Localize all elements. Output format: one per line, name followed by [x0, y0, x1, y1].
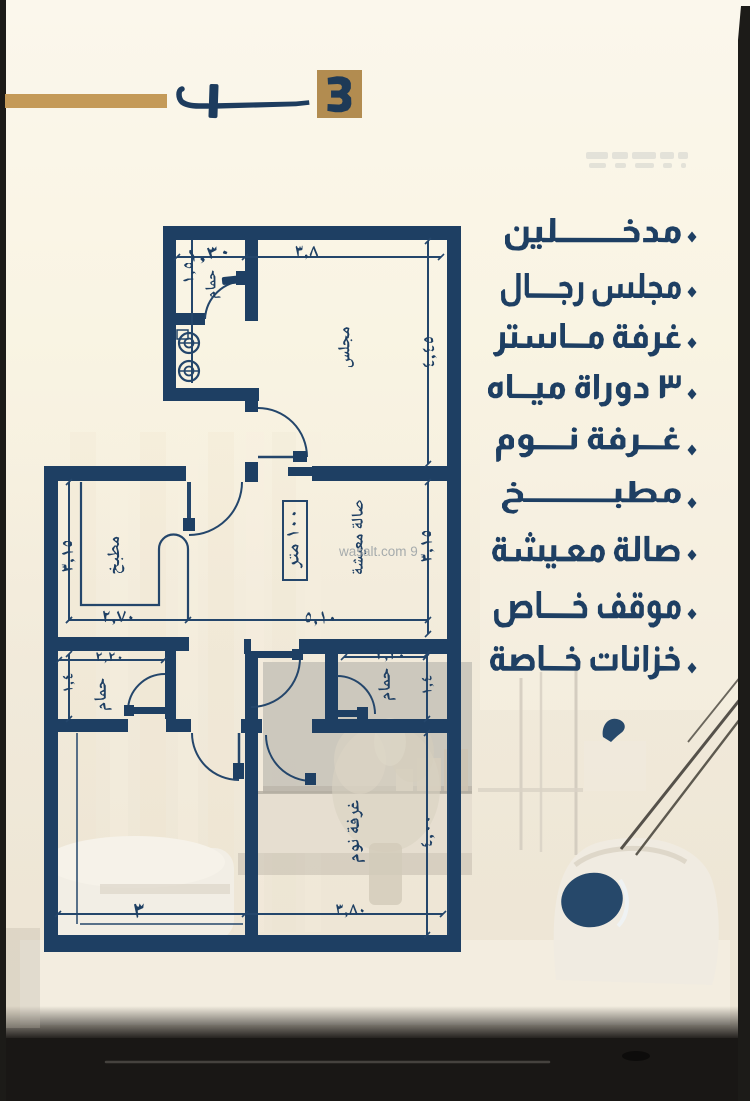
svg-text:wasalt.com 9: wasalt.com 9: [338, 544, 418, 559]
